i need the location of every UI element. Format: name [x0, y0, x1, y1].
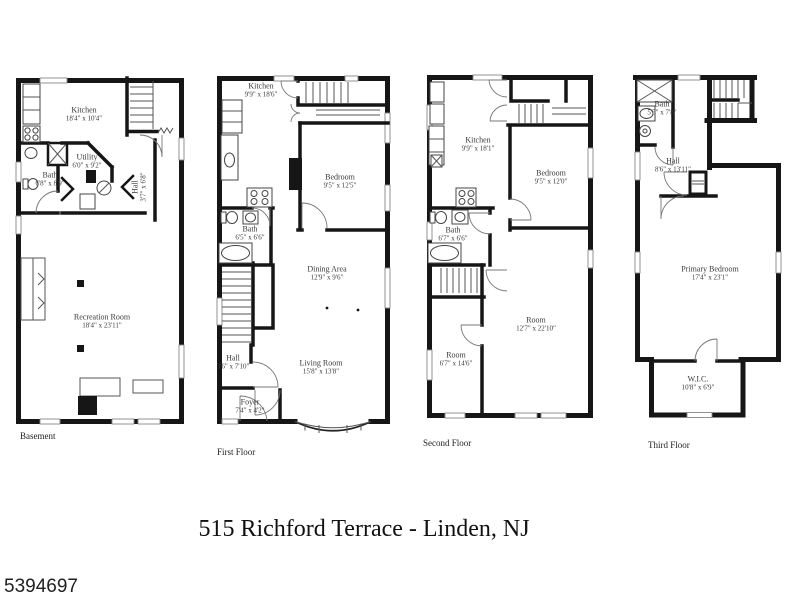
- room-label-first-hall: Hall 3'6" x 7'10": [217, 353, 250, 370]
- stove-icon: [456, 188, 476, 207]
- room-label-third-primary: Primary Bedroom 17'4" x 23'1": [681, 264, 739, 281]
- room-label-third-wic: W.I.C. 10'8" x 6'9": [682, 374, 715, 391]
- floor-label-basement: Basement: [20, 431, 56, 441]
- floor-plan-sheet: Kitchen 18'4" x 10'4" Utility 6'0" x 9'2…: [0, 0, 799, 600]
- sink-icon: [25, 148, 37, 159]
- room-label-first-living: Living Room 15'8" x 13'8": [300, 358, 343, 375]
- third-floor-plan: [635, 75, 781, 418]
- room-label-second-room-small: Room 6'7" x 14'6": [440, 350, 473, 367]
- closet-shelves: [692, 181, 704, 184]
- room-label-second-bath: Bath 6'7" x 6'6": [438, 225, 467, 242]
- first-mid-stairs: [222, 272, 251, 342]
- support-post: [77, 345, 84, 352]
- third-outer-wall: [636, 78, 779, 416]
- room-label-basement-bath: Bath 6'8" x 8'9": [35, 170, 64, 187]
- floor-label-third: Third Floor: [648, 440, 690, 450]
- kitchen-counter-icon: [429, 82, 444, 167]
- first-upper-stairs: [306, 82, 348, 103]
- room-label-third-hall: Hall 8'6" x 13'11": [655, 156, 691, 173]
- sink-icon: [243, 211, 258, 224]
- floor-label-first: First Floor: [217, 447, 255, 457]
- bay-window: [295, 422, 371, 434]
- bathtub-icon: [219, 243, 252, 263]
- refrigerator-counter-icon: [23, 84, 40, 124]
- chimney: [289, 158, 302, 190]
- page-title: 515 Richford Terrace - Linden, NJ: [186, 516, 542, 543]
- stove-icon: [23, 126, 40, 142]
- ceiling-fixture: [326, 307, 329, 310]
- room-label-first-bath: Bath 6'5" x 6'6": [235, 224, 264, 241]
- room-label-basement-utility: Utility 6'0" x 9'2": [72, 152, 101, 169]
- first-floor-plan: [217, 76, 390, 433]
- room-label-first-foyer: Foyer 7'4" x 4'2": [235, 397, 264, 414]
- toilet-icon: [221, 212, 238, 224]
- second-upper-stairs: [519, 104, 543, 123]
- room-label-first-bedroom: Bedroom 9'5" x 12'5": [324, 172, 357, 189]
- sink-icon: [640, 126, 651, 137]
- ceiling-fixture: [357, 309, 360, 312]
- closet-shelves: [316, 110, 380, 115]
- listing-number: 5394697: [4, 576, 78, 598]
- support-post: [77, 280, 84, 287]
- closet-shelves: [552, 108, 586, 114]
- second-mid-stairs: [441, 268, 477, 293]
- room-label-third-bath: Bath 5'5" x 7'8": [647, 99, 676, 116]
- third-doors: [655, 147, 717, 361]
- floor-label-second: Second Floor: [423, 438, 471, 448]
- vent-hatch: [158, 128, 173, 133]
- furnace-icon: [80, 170, 111, 209]
- basement-furniture: [78, 378, 163, 415]
- room-label-basement-hall: Hall 3'7" x 6'8": [130, 172, 147, 201]
- plans-svg: [0, 0, 799, 600]
- room-label-second-kitchen: Kitchen 9'9" x 18'1": [462, 135, 495, 152]
- sink-icon: [452, 210, 468, 224]
- second-doors: [461, 80, 531, 346]
- toilet-icon: [430, 212, 447, 224]
- basement-stairs: [130, 81, 153, 129]
- room-label-second-bedroom: Bedroom 9'5" x 12'0": [535, 168, 568, 185]
- bathtub-icon: [428, 243, 461, 263]
- kitchen-counter-icon: [221, 100, 242, 180]
- room-label-second-room-large: Room 12'7" x 22'10": [516, 315, 556, 332]
- room-label-first-kitchen: Kitchen 9'9" x 18'6": [245, 81, 278, 98]
- basement-windows: [16, 78, 184, 424]
- room-label-basement-recreation: Recreation Room 18'4" x 23'11": [74, 312, 130, 329]
- room-label-basement-kitchen: Kitchen 18'4" x 10'4": [66, 105, 102, 122]
- stove-icon: [247, 188, 272, 207]
- basement-floor-plan: [16, 78, 184, 424]
- basement-stairwell: [21, 258, 45, 320]
- room-label-first-dining: Dining Area 12'9" x 9'6": [307, 264, 346, 281]
